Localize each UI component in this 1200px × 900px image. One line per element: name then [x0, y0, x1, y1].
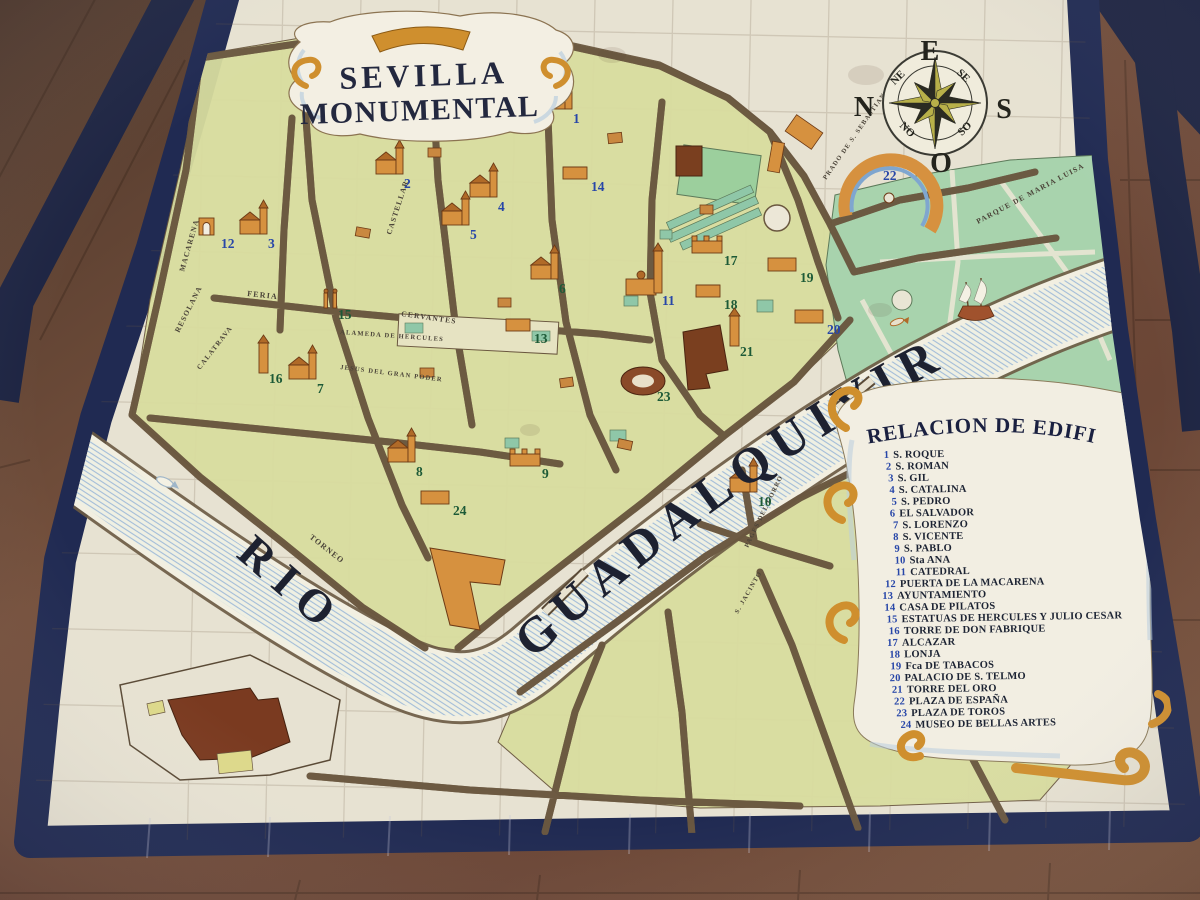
photo-vignette [0, 0, 1200, 900]
tiled-map-photo: MACARENARESOLANACALATRAVAFERIACASTELLARC… [0, 0, 1200, 900]
sevilla-monumental-tile-map: MACARENARESOLANACALATRAVAFERIACASTELLARC… [0, 0, 1200, 900]
